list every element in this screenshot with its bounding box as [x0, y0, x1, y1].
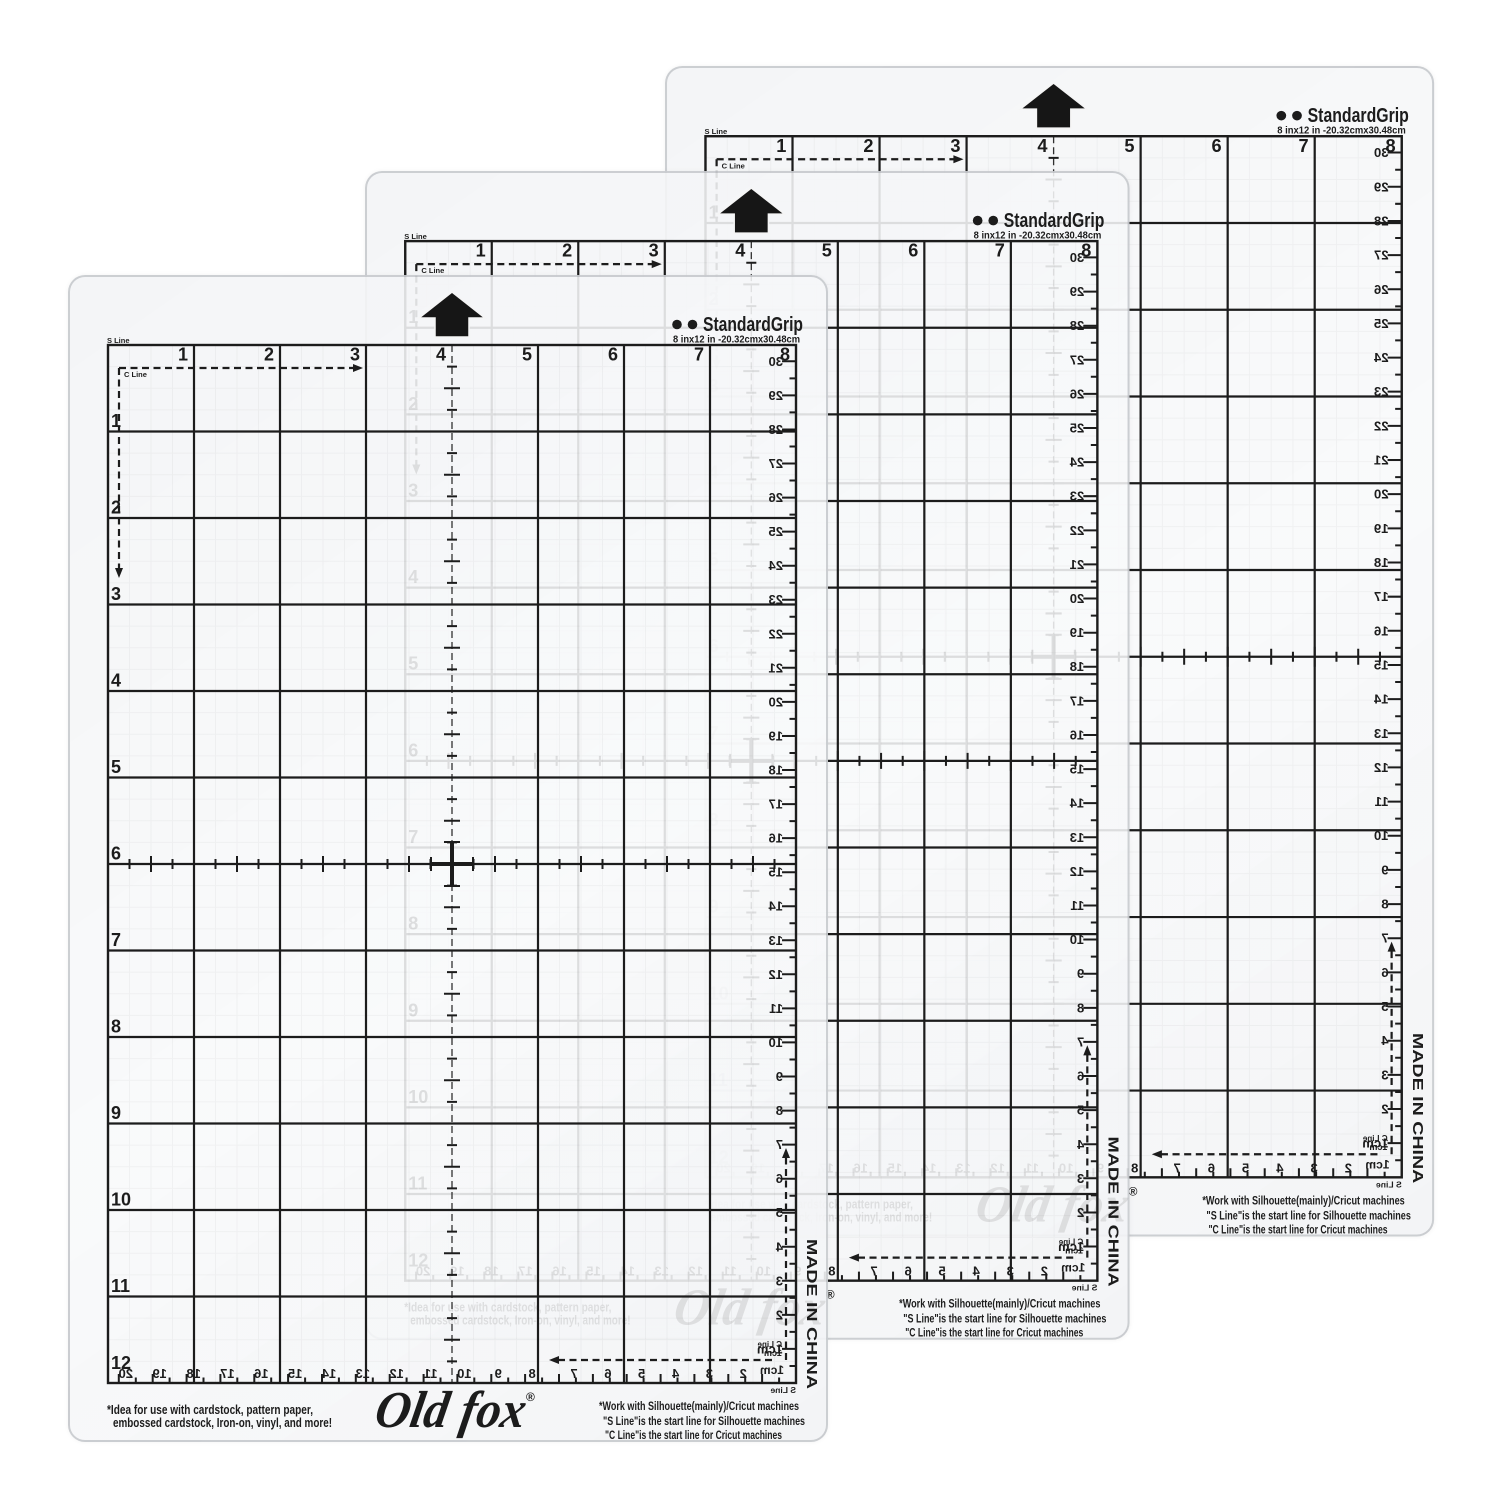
svg-text:15: 15 — [1374, 658, 1389, 673]
svg-text:8: 8 — [776, 1103, 783, 1118]
svg-text:29: 29 — [1374, 179, 1389, 194]
svg-text:26: 26 — [1070, 386, 1085, 401]
svg-text:24: 24 — [1373, 350, 1388, 365]
svg-text:5: 5 — [1124, 136, 1134, 156]
svg-text:5: 5 — [522, 345, 532, 365]
svg-text:16: 16 — [254, 1366, 268, 1381]
svg-text:21: 21 — [769, 660, 783, 675]
svg-text:9: 9 — [1381, 862, 1388, 877]
svg-text:C Line: C Line — [421, 266, 444, 275]
svg-text:19: 19 — [769, 729, 783, 744]
svg-text:22: 22 — [1374, 418, 1389, 433]
svg-text:1: 1 — [178, 345, 188, 365]
svg-text:13: 13 — [356, 1366, 370, 1381]
svg-text:19: 19 — [1374, 521, 1389, 536]
svg-text:10: 10 — [111, 1190, 131, 1210]
svg-text:2: 2 — [1381, 1102, 1388, 1117]
svg-text:4: 4 — [1037, 136, 1047, 156]
svg-text:8: 8 — [111, 1017, 121, 1037]
svg-text:27: 27 — [1070, 352, 1085, 367]
svg-text:14: 14 — [768, 899, 783, 914]
svg-text:S Line: S Line — [1071, 1283, 1097, 1293]
svg-text:S Line: S Line — [704, 127, 727, 136]
svg-text:29: 29 — [1070, 284, 1085, 299]
svg-text:MADE IN CHINA: MADE IN CHINA — [803, 1239, 820, 1389]
svg-text:30: 30 — [1070, 250, 1085, 265]
svg-text:15: 15 — [1070, 762, 1085, 777]
svg-text:1cm: 1cm — [760, 1363, 784, 1377]
svg-text:20: 20 — [119, 1366, 133, 1381]
svg-text:12: 12 — [1070, 864, 1085, 879]
svg-text:"S Line"is the start line for: "S Line"is the start line for Silhouette… — [603, 1414, 805, 1428]
svg-text:11: 11 — [111, 1276, 130, 1296]
svg-text:6: 6 — [608, 345, 618, 365]
svg-text:12: 12 — [769, 967, 783, 982]
svg-text:1cm: 1cm — [1369, 1142, 1387, 1152]
svg-text:10: 10 — [457, 1366, 471, 1381]
svg-text:8: 8 — [1077, 1000, 1084, 1015]
svg-text:30: 30 — [769, 354, 783, 369]
svg-text:19: 19 — [152, 1366, 166, 1381]
svg-text:28: 28 — [1070, 318, 1085, 333]
svg-text:7: 7 — [111, 930, 121, 950]
svg-text:16: 16 — [769, 831, 783, 846]
svg-text:MADE IN CHINA: MADE IN CHINA — [1409, 1033, 1426, 1184]
svg-text:8: 8 — [1131, 1160, 1138, 1175]
svg-text:17: 17 — [220, 1366, 234, 1381]
svg-text:S Line: S Line — [107, 336, 130, 345]
svg-text:C Line: C Line — [124, 370, 147, 379]
svg-text:22: 22 — [769, 626, 783, 641]
svg-text:18: 18 — [186, 1366, 200, 1381]
svg-text:3: 3 — [111, 584, 121, 604]
svg-text:4: 4 — [1076, 1137, 1084, 1152]
svg-text:20: 20 — [1070, 591, 1085, 606]
svg-text:25: 25 — [1374, 316, 1389, 331]
svg-text:10: 10 — [1374, 828, 1389, 843]
svg-text:17: 17 — [1070, 693, 1085, 708]
svg-text:4: 4 — [1381, 1033, 1389, 1048]
svg-text:2: 2 — [562, 241, 572, 261]
svg-text:29: 29 — [769, 388, 783, 403]
svg-text:18: 18 — [769, 763, 783, 778]
svg-text:*Work with Silhouette(mainly)/: *Work with Silhouette(mainly)/Cricut mac… — [1202, 1193, 1405, 1207]
svg-text:"S Line"is the start line for: "S Line"is the start line for Silhouette… — [1206, 1208, 1411, 1222]
svg-text:19: 19 — [1070, 625, 1085, 640]
svg-text:11: 11 — [424, 1366, 438, 1381]
svg-text:14: 14 — [1069, 796, 1084, 811]
svg-text:8: 8 — [528, 1366, 535, 1381]
svg-text:Old fox: Old fox — [371, 1381, 531, 1439]
svg-text:25: 25 — [1070, 421, 1085, 436]
svg-text:13: 13 — [1070, 830, 1085, 845]
svg-text:17: 17 — [769, 797, 783, 812]
svg-text:7: 7 — [776, 1137, 783, 1152]
svg-text:10: 10 — [1070, 932, 1085, 947]
svg-text:S Line: S Line — [1376, 1179, 1402, 1189]
svg-text:1: 1 — [776, 136, 786, 156]
svg-text:"C Line"is the start line for: "C Line"is the start line for Cricut mac… — [1208, 1223, 1387, 1237]
svg-text:9: 9 — [776, 1069, 783, 1084]
svg-text:3: 3 — [1381, 1067, 1388, 1082]
svg-text:MADE IN CHINA: MADE IN CHINA — [1104, 1136, 1121, 1286]
svg-text:24: 24 — [768, 558, 783, 573]
svg-text:3: 3 — [950, 136, 960, 156]
svg-text:7: 7 — [1077, 1034, 1084, 1049]
svg-text:C Line: C Line — [722, 161, 745, 170]
svg-text:S Line: S Line — [404, 232, 427, 241]
svg-text:16: 16 — [1070, 727, 1085, 742]
svg-text:®: ® — [526, 1390, 535, 1404]
svg-text:28: 28 — [1374, 214, 1389, 229]
svg-text:4: 4 — [436, 345, 446, 365]
svg-text:S Line: S Line — [770, 1385, 796, 1395]
svg-text:6: 6 — [1381, 965, 1388, 980]
svg-text:15: 15 — [769, 865, 783, 880]
svg-text:4: 4 — [111, 671, 121, 691]
svg-text:8 inx12 in -20.32cmx30.48cm: 8 inx12 in -20.32cmx30.48cm — [1277, 125, 1406, 137]
svg-text:18: 18 — [1070, 659, 1085, 674]
svg-text:3: 3 — [776, 1273, 783, 1288]
svg-text:3: 3 — [1077, 1171, 1084, 1186]
svg-text:16: 16 — [1374, 623, 1389, 638]
svg-text:3: 3 — [649, 241, 659, 261]
svg-text:5: 5 — [111, 757, 121, 777]
svg-text:20: 20 — [1374, 487, 1389, 502]
svg-text:21: 21 — [1374, 453, 1389, 468]
svg-text:6: 6 — [1077, 1069, 1084, 1084]
svg-text:8 inx12 in -20.32cmx30.48cm: 8 inx12 in -20.32cmx30.48cm — [974, 230, 1102, 242]
svg-text:27: 27 — [769, 456, 783, 471]
svg-text:4: 4 — [735, 241, 745, 261]
svg-text:5: 5 — [776, 1205, 783, 1220]
svg-text:*Work with Silhouette(mainly)/: *Work with Silhouette(mainly)/Cricut mac… — [899, 1297, 1100, 1311]
svg-text:1cm: 1cm — [764, 1348, 782, 1358]
svg-text:"S Line"is the start line for: "S Line"is the start line for Silhouette… — [903, 1312, 1106, 1326]
svg-text:26: 26 — [1374, 282, 1389, 297]
svg-text:8 inx12 in -20.32cmx30.48cm: 8 inx12 in -20.32cmx30.48cm — [673, 334, 800, 346]
svg-text:2: 2 — [1077, 1205, 1084, 1220]
svg-text:6: 6 — [908, 241, 918, 261]
svg-text:11: 11 — [769, 1001, 783, 1016]
svg-text:10: 10 — [769, 1035, 783, 1050]
svg-text:4: 4 — [775, 1239, 783, 1254]
svg-text:11: 11 — [1070, 898, 1084, 913]
svg-text:11: 11 — [1375, 794, 1389, 809]
svg-text:12: 12 — [389, 1366, 403, 1381]
svg-text:15: 15 — [288, 1366, 302, 1381]
svg-text:9: 9 — [111, 1103, 121, 1123]
svg-text:2: 2 — [776, 1307, 783, 1322]
svg-text:22: 22 — [1070, 523, 1085, 538]
svg-text:1cm: 1cm — [1365, 1157, 1389, 1171]
svg-text:*Work with Silhouette(mainly)/: *Work with Silhouette(mainly)/Cricut mac… — [599, 1399, 799, 1413]
svg-text:5: 5 — [822, 241, 832, 261]
svg-text:1cm: 1cm — [1065, 1246, 1083, 1256]
svg-text:5: 5 — [1077, 1103, 1084, 1118]
svg-text:7: 7 — [694, 345, 704, 365]
svg-text:13: 13 — [1374, 726, 1389, 741]
svg-text:2: 2 — [863, 136, 873, 156]
svg-text:6: 6 — [111, 844, 121, 864]
svg-text:13: 13 — [769, 933, 783, 948]
svg-text:23: 23 — [1070, 489, 1085, 504]
svg-text:7: 7 — [1381, 931, 1388, 946]
svg-text:20: 20 — [769, 694, 783, 709]
svg-text:6: 6 — [1211, 136, 1221, 156]
svg-text:21: 21 — [1070, 557, 1085, 572]
svg-text:23: 23 — [1374, 384, 1389, 399]
svg-text:7: 7 — [995, 241, 1005, 261]
svg-text:12: 12 — [1374, 760, 1389, 775]
svg-text:7: 7 — [1298, 136, 1308, 156]
svg-text:9: 9 — [1077, 966, 1084, 981]
svg-text:1: 1 — [476, 241, 486, 261]
svg-text:30: 30 — [1374, 145, 1389, 160]
svg-text:"C Line"is the start line for: "C Line"is the start line for Cricut mac… — [905, 1326, 1083, 1340]
svg-text:14: 14 — [321, 1366, 336, 1381]
svg-text:"C Line"is the start line for: "C Line"is the start line for Cricut mac… — [605, 1428, 782, 1442]
svg-text:5: 5 — [1381, 999, 1388, 1014]
svg-text:24: 24 — [1069, 455, 1084, 470]
svg-text:14: 14 — [1373, 692, 1388, 707]
svg-text:26: 26 — [769, 490, 783, 505]
svg-text:18: 18 — [1374, 555, 1389, 570]
svg-text:23: 23 — [769, 592, 783, 607]
svg-text:9: 9 — [495, 1366, 502, 1381]
svg-text:embossed cardstock, Iron-on, v: embossed cardstock, Iron-on, vinyl, and … — [113, 1415, 332, 1430]
svg-text:1cm: 1cm — [1061, 1261, 1085, 1275]
svg-text:8: 8 — [1381, 897, 1388, 912]
svg-text:6: 6 — [776, 1171, 783, 1186]
svg-text:28: 28 — [769, 422, 783, 437]
svg-text:25: 25 — [769, 524, 783, 539]
svg-text:17: 17 — [1374, 589, 1389, 604]
svg-text:3: 3 — [350, 345, 360, 365]
svg-text:2: 2 — [264, 345, 274, 365]
svg-text:27: 27 — [1374, 248, 1389, 263]
